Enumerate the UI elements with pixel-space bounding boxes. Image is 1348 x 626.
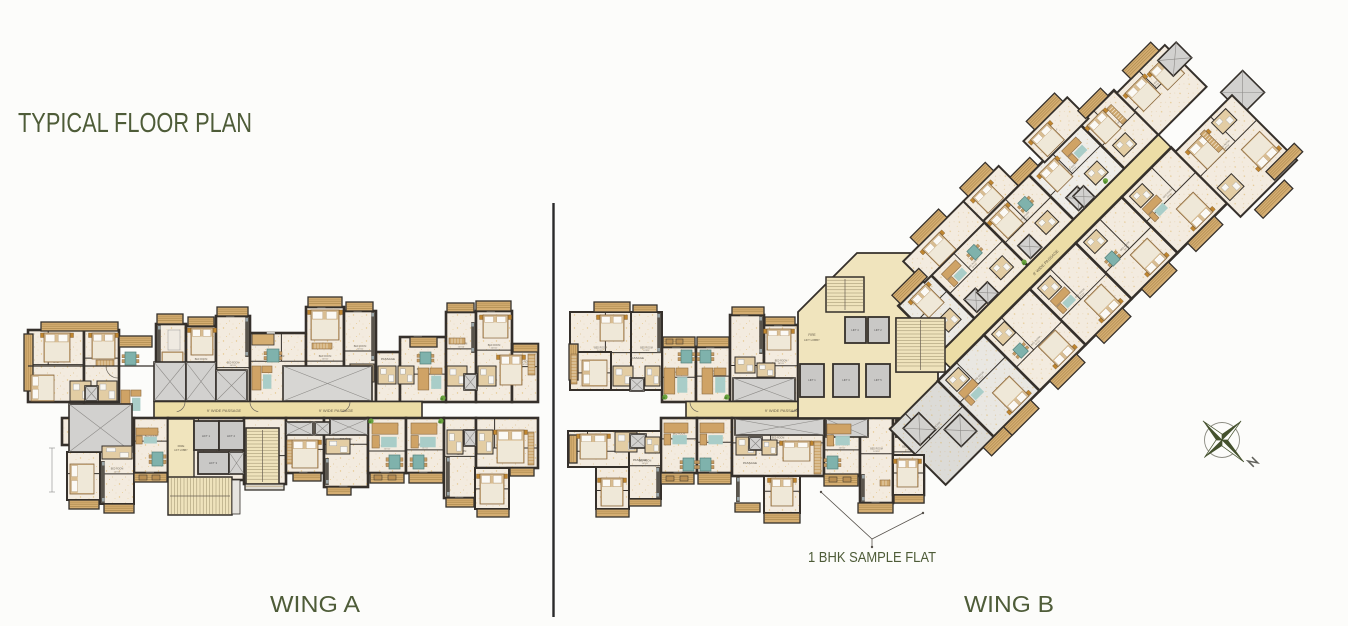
svg-text:9' WIDE PASSAGE: 9' WIDE PASSAGE <box>207 408 242 413</box>
svg-text:10'X11': 10'X11' <box>357 348 364 350</box>
svg-text:LIFT 2: LIFT 2 <box>874 328 882 332</box>
svg-text:PASSAGE: PASSAGE <box>381 357 395 361</box>
svg-text:10'X11': 10'X11' <box>491 348 498 350</box>
svg-text:WING A: WING A <box>270 591 360 617</box>
svg-text:10'X11': 10'X11' <box>322 359 329 361</box>
svg-text:LIFT LOBBY: LIFT LOBBY <box>804 338 820 342</box>
svg-text:PASSAGE: PASSAGE <box>743 461 757 465</box>
svg-text:LIFT 1: LIFT 1 <box>202 434 210 438</box>
svg-text:LIFT 3: LIFT 3 <box>842 378 850 382</box>
svg-text:WING B: WING B <box>964 591 1054 617</box>
svg-text:LIFT 5: LIFT 5 <box>874 378 882 382</box>
svg-text:1 BHK SAMPLE FLAT: 1 BHK SAMPLE FLAT <box>808 550 936 566</box>
svg-text:9' WIDE PASSAGE: 9' WIDE PASSAGE <box>765 408 800 413</box>
svg-text:10'X11': 10'X11' <box>114 471 121 473</box>
svg-text:10'X11': 10'X11' <box>230 365 237 367</box>
svg-text:10'X11': 10'X11' <box>643 350 650 352</box>
svg-text:LIFT 1: LIFT 1 <box>808 378 816 382</box>
svg-text:TYPICAL FLOOR PLAN: TYPICAL FLOOR PLAN <box>18 107 252 138</box>
svg-text:9' WIDE PASSAGE: 9' WIDE PASSAGE <box>319 408 354 413</box>
svg-text:FIRE: FIRE <box>808 333 815 337</box>
svg-text:LIFT 4: LIFT 4 <box>851 328 859 332</box>
svg-text:10'X11': 10'X11' <box>839 447 846 449</box>
svg-text:LIFT LOBBY: LIFT LOBBY <box>174 449 188 452</box>
svg-text:10'X11': 10'X11' <box>642 463 649 465</box>
svg-text:PASSAGE: PASSAGE <box>633 458 647 462</box>
svg-text:10'X11': 10'X11' <box>384 448 391 450</box>
svg-text:FIRE: FIRE <box>178 444 185 448</box>
svg-text:10'X11': 10'X11' <box>422 447 429 449</box>
svg-text:10'X11': 10'X11' <box>458 346 465 348</box>
svg-text:LIFT 2: LIFT 2 <box>227 434 235 438</box>
svg-text:PASSAGE: PASSAGE <box>630 356 644 360</box>
svg-text:10'X11': 10'X11' <box>778 363 785 365</box>
svg-text:LIFT 3: LIFT 3 <box>209 461 217 465</box>
svg-text:10'X11': 10'X11' <box>873 451 880 453</box>
